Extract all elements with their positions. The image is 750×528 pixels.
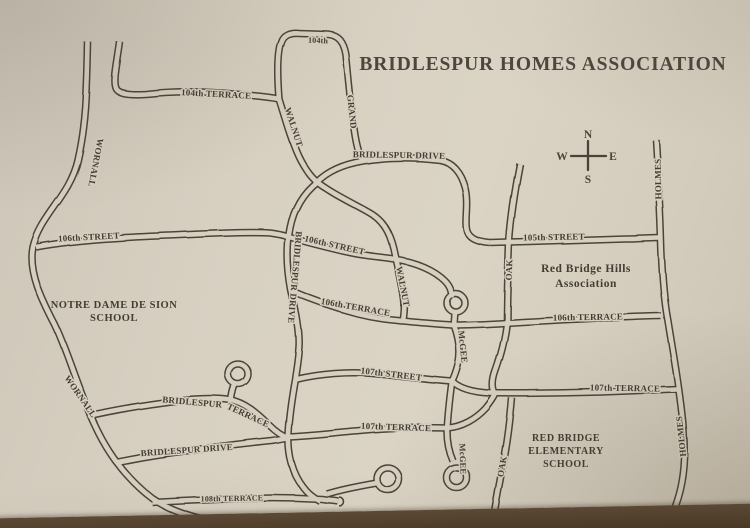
map-canvas: WORNALL104th TERRACE104thWALNUTGRANDBRID… [0, 0, 750, 528]
street-label-street-104: 104th [308, 36, 329, 46]
compass-cross-icon [571, 141, 606, 170]
street-label-wornall-north: WORNALL [86, 138, 105, 188]
compass-north-label: N [584, 129, 593, 141]
street-label-street-105: 105th STREET [523, 231, 585, 242]
street-label-grand: GRAND [345, 94, 359, 129]
red-bridge-hills-association-label-line-2: Association [555, 278, 617, 290]
street-label-bridlespur-drive-south: BRIDLESPUR DRIVE [140, 442, 233, 458]
compass-east-label: E [609, 151, 617, 163]
compass-rose: N S W E [556, 129, 617, 186]
street-label-walnut-mid: WALNUT [394, 265, 412, 307]
road-terrace-108-end-cap [339, 497, 344, 506]
red-bridge-hills-association-label-line-1: Red Bridge Hills [541, 263, 631, 275]
red-bridge-elementary-school-label-line-3: SCHOOL [543, 459, 589, 470]
compass-west-label: W [556, 151, 568, 163]
street-label-oak-south: OAK [495, 455, 509, 478]
street-label-street-106-mid: 106th STREET [304, 233, 366, 257]
street-label-terrace-107-east: 107th TERRACE [590, 382, 660, 393]
street-label-terrace-104: 104th TERRACE [181, 87, 252, 101]
street-label-terrace-108: 108th TERRACE [201, 493, 264, 503]
red-bridge-elementary-school-label-line-2: ELEMENTARY [528, 446, 604, 457]
street-label-holmes-north: HOLMES [653, 159, 664, 200]
red-bridge-elementary-school-label-line-1: RED BRIDGE [532, 433, 600, 444]
notre-dame-school-label-line-1: NOTRE DAME DE SION [51, 300, 178, 311]
notre-dame-school-label-line-2: SCHOOL [90, 313, 138, 324]
street-label-street-107: 107th STREET [360, 365, 422, 382]
street-label-bridlespur-drive-main: BRIDLESPUR DRIVE [353, 149, 446, 161]
street-label-oak-north: OAK [504, 259, 515, 280]
street-label-terrace-106-east: 106th TERRACE [553, 311, 623, 322]
map-title: BRIDLESPUR HOMES ASSOCIATION [359, 54, 726, 75]
map-photo: WORNALL104th TERRACE104thWALNUTGRANDBRID… [0, 0, 750, 528]
compass-south-label: S [585, 174, 591, 186]
street-label-mcgee-south: McGEE [457, 443, 468, 474]
